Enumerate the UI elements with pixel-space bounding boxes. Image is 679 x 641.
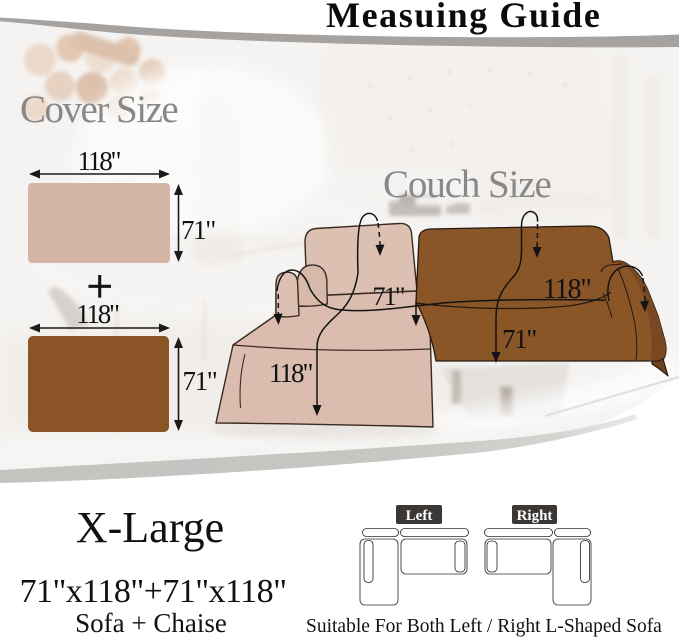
svg-text:Measuing Guide: Measuing Guide: [326, 0, 601, 35]
svg-text:71": 71": [502, 324, 536, 354]
svg-text:71": 71": [183, 366, 217, 396]
svg-text:Couch Size: Couch Size: [383, 163, 551, 206]
svg-text:118": 118": [543, 274, 591, 305]
svg-text:71"x118"+71"x118": 71"x118"+71"x118": [20, 573, 287, 610]
svg-text:X-Large: X-Large: [76, 503, 224, 552]
svg-text:71": 71": [181, 215, 215, 245]
svg-text:118": 118": [78, 146, 121, 176]
svg-text:118": 118": [76, 299, 119, 329]
svg-text:118": 118": [269, 358, 312, 388]
svg-text:Sofa + Chaise: Sofa + Chaise: [75, 608, 227, 638]
svg-text:Left: Left: [406, 508, 433, 524]
svg-text:Cover Size: Cover Size: [20, 88, 177, 131]
svg-text:Suitable For Both Left / Right: Suitable For Both Left / Right L-Shaped …: [306, 616, 662, 637]
svg-text:Right: Right: [517, 508, 553, 524]
svg-text:71": 71": [373, 282, 404, 311]
